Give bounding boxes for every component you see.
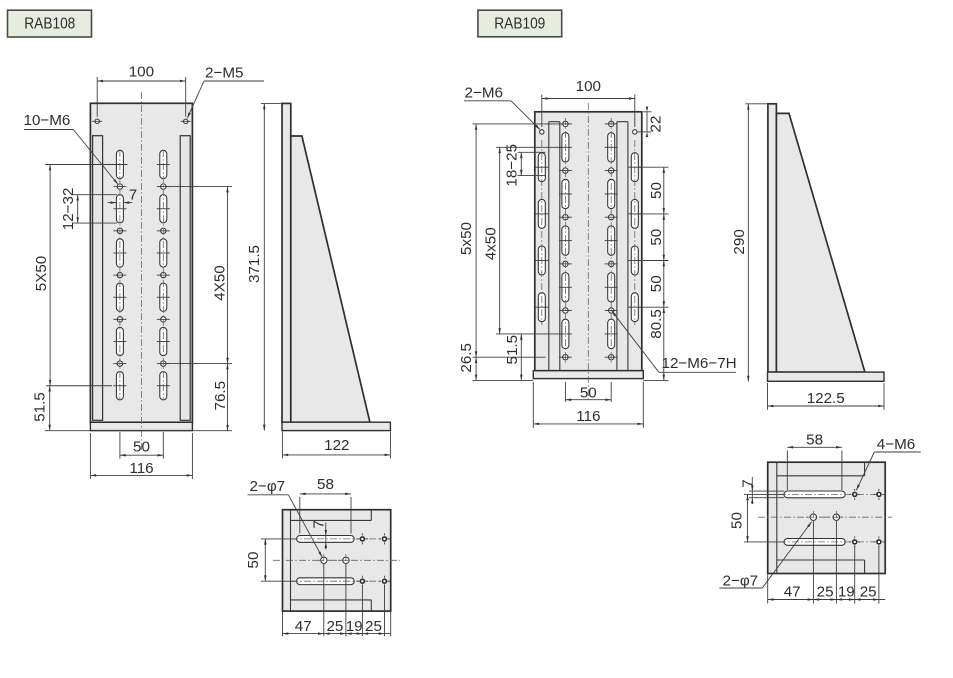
svg-text:25: 25 — [860, 583, 877, 600]
svg-text:10−M6: 10−M6 — [24, 112, 71, 129]
svg-text:50: 50 — [580, 384, 597, 401]
svg-text:50: 50 — [245, 552, 262, 569]
svg-text:26.5: 26.5 — [458, 343, 475, 373]
svg-text:51.5: 51.5 — [504, 335, 521, 365]
svg-text:2−φ7: 2−φ7 — [250, 478, 286, 495]
svg-text:12−M6−7H: 12−M6−7H — [662, 355, 737, 372]
svg-text:19: 19 — [838, 583, 855, 600]
svg-text:2−M5: 2−M5 — [205, 65, 243, 82]
svg-text:25: 25 — [817, 583, 834, 600]
svg-text:2−φ7: 2−φ7 — [723, 572, 759, 589]
svg-text:80.5: 80.5 — [648, 309, 665, 339]
svg-text:371.5: 371.5 — [246, 245, 263, 283]
svg-text:22: 22 — [648, 116, 665, 133]
svg-text:12−32: 12−32 — [60, 188, 77, 231]
svg-text:4X50: 4X50 — [212, 265, 229, 300]
svg-text:7: 7 — [129, 187, 137, 204]
svg-text:18−25: 18−25 — [503, 144, 520, 187]
svg-text:122.5: 122.5 — [807, 390, 845, 407]
svg-text:50: 50 — [728, 512, 745, 529]
svg-text:47: 47 — [784, 583, 801, 600]
svg-text:5x50: 5x50 — [458, 222, 475, 255]
svg-text:100: 100 — [129, 64, 154, 81]
svg-text:50: 50 — [133, 439, 150, 456]
svg-text:50: 50 — [648, 275, 665, 292]
svg-text:4x50: 4x50 — [482, 227, 499, 260]
svg-text:50: 50 — [648, 229, 665, 246]
svg-text:116: 116 — [576, 408, 600, 425]
svg-text:25: 25 — [365, 618, 382, 635]
svg-text:58: 58 — [806, 431, 823, 448]
svg-text:47: 47 — [295, 618, 312, 635]
svg-text:290: 290 — [731, 229, 748, 254]
svg-text:58: 58 — [317, 476, 334, 493]
svg-text:RAB108: RAB108 — [24, 16, 75, 33]
svg-text:RAB109: RAB109 — [494, 16, 545, 33]
svg-text:19: 19 — [346, 618, 363, 635]
svg-text:50: 50 — [648, 182, 665, 199]
svg-text:116: 116 — [129, 460, 153, 477]
svg-text:76.5: 76.5 — [212, 381, 229, 411]
svg-text:7: 7 — [739, 479, 756, 487]
svg-text:4−M6: 4−M6 — [877, 436, 915, 453]
svg-text:7: 7 — [310, 520, 327, 528]
svg-text:2−M6: 2−M6 — [465, 84, 503, 101]
svg-text:5X50: 5X50 — [33, 256, 50, 291]
svg-text:51.5: 51.5 — [31, 392, 48, 422]
svg-text:25: 25 — [326, 618, 343, 635]
svg-text:122: 122 — [324, 437, 349, 454]
svg-text:100: 100 — [576, 78, 601, 95]
